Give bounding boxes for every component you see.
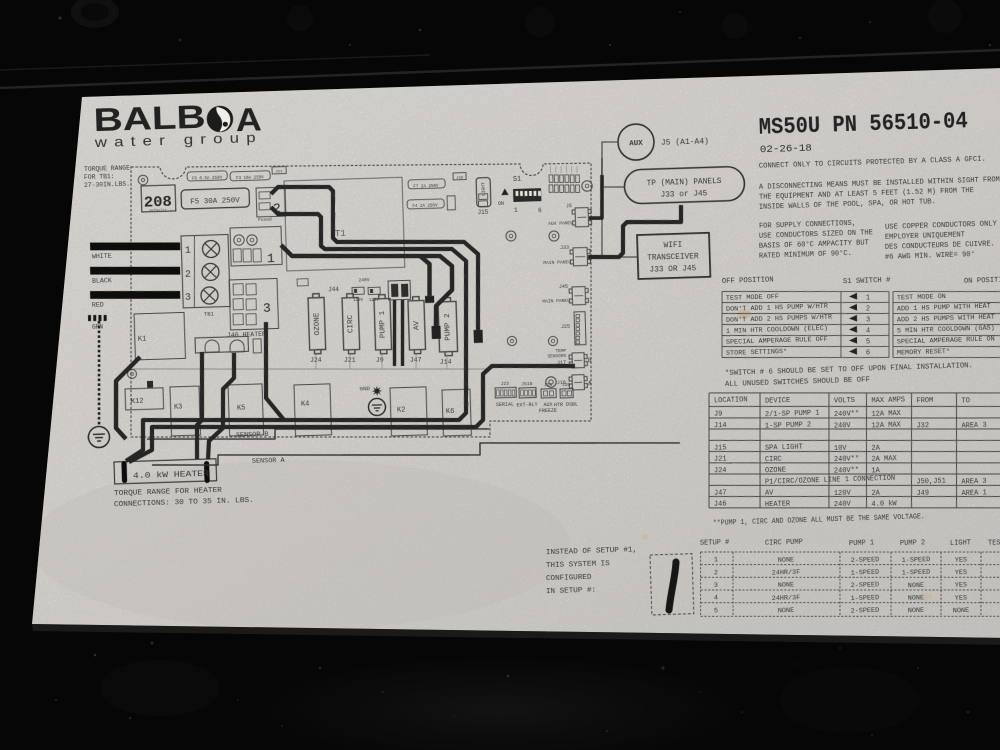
svg-text:EXT-RLY: EXT-RLY [516, 402, 537, 409]
svg-text:ON POSITION: ON POSITION [964, 277, 1000, 286]
svg-text:K12: K12 [131, 398, 144, 406]
svg-text:5: 5 [866, 339, 870, 347]
svg-text:FREEZE: FREEZE [539, 408, 557, 415]
svg-text:NONE: NONE [778, 556, 795, 565]
svg-text:J32: J32 [916, 422, 929, 430]
svg-text:LIGHT: LIGHT [950, 539, 971, 548]
svg-text:2: 2 [866, 306, 870, 314]
svg-text:12A MAX: 12A MAX [871, 410, 901, 419]
svg-text:J45: J45 [559, 284, 568, 290]
svg-text:J14: J14 [714, 422, 727, 430]
svg-text:CIRC: CIRC [765, 456, 782, 465]
svg-text:4: 4 [866, 328, 870, 336]
svg-text:defaults: defaults [149, 208, 166, 214]
svg-text:YES: YES [955, 582, 967, 590]
svg-text:MAX AMPS: MAX AMPS [871, 396, 905, 405]
svg-text:OZONE: OZONE [313, 312, 322, 335]
svg-text:J49: J49 [916, 489, 929, 497]
svg-text:TO: TO [961, 397, 970, 405]
svg-text:F4 2A 250V: F4 2A 250V [412, 205, 438, 210]
svg-text:AREA 3: AREA 3 [961, 478, 986, 487]
svg-text:AV: AV [765, 490, 774, 498]
svg-text:240V**: 240V** [834, 467, 859, 476]
svg-text:6: 6 [538, 207, 542, 214]
svg-text:DEVICE: DEVICE [765, 397, 790, 406]
svg-text:240V: 240V [358, 277, 369, 283]
svg-text:IN SETUP #:: IN SETUP #: [546, 586, 596, 596]
svg-text:5: 5 [714, 607, 718, 615]
svg-text:12A MAX: 12A MAX [871, 422, 901, 431]
svg-text:TES: TES [988, 540, 1000, 548]
svg-text:K1: K1 [138, 336, 147, 344]
svg-text:2A: 2A [871, 445, 880, 453]
svg-text:HTR DSBL: HTR DSBL [554, 402, 578, 409]
svg-text:PUMP 2: PUMP 2 [444, 313, 453, 341]
svg-text:GND: GND [359, 385, 370, 392]
svg-text:02-26-18: 02-26-18 [760, 142, 812, 156]
svg-text:27-30IN.LBS.: 27-30IN.LBS. [84, 181, 130, 189]
svg-text:J15: J15 [477, 209, 488, 216]
svg-text:MAIN PANEL: MAIN PANEL [543, 259, 571, 266]
svg-text:J20: J20 [562, 382, 571, 388]
svg-text:K2: K2 [397, 407, 406, 415]
svg-text:3: 3 [263, 301, 271, 316]
svg-text:TORQUE RANGE: TORQUE RANGE [84, 165, 130, 173]
svg-text:1: 1 [866, 295, 870, 303]
svg-text:240V**: 240V** [834, 455, 859, 464]
svg-text:NONE: NONE [778, 607, 795, 616]
svg-text:SENSOR A: SENSOR A [252, 457, 286, 466]
svg-text:J50,J51: J50,J51 [916, 478, 946, 487]
svg-text:TRANSCEIVER: TRANSCEIVER [647, 253, 699, 263]
svg-text:4.0 kW: 4.0 kW [871, 500, 897, 509]
svg-text:S1 SWITCH #: S1 SWITCH # [843, 276, 891, 286]
svg-text:YES: YES [955, 594, 967, 602]
svg-text:3: 3 [866, 317, 870, 325]
svg-text:J25: J25 [561, 324, 570, 330]
svg-text:S1: S1 [513, 176, 522, 184]
svg-text:J33 or J45: J33 or J45 [660, 190, 707, 199]
svg-text:K3: K3 [174, 404, 183, 412]
svg-text:J33 OR J45: J33 OR J45 [649, 265, 696, 274]
svg-text:SETUP #: SETUP # [700, 539, 730, 548]
svg-text:OFF POSITION: OFF POSITION [722, 276, 774, 286]
svg-text:J5 (A1-A4): J5 (A1-A4) [661, 138, 709, 149]
svg-text:J19: J19 [456, 176, 464, 180]
svg-text:10V: 10V [834, 444, 848, 452]
svg-text:CONFIGURED: CONFIGURED [546, 574, 592, 583]
svg-text:J46: J46 [714, 501, 727, 509]
svg-text:AUX PANEL: AUX PANEL [548, 220, 573, 227]
svg-text:RED: RED [92, 302, 104, 309]
svg-text:AREA 1: AREA 1 [961, 489, 986, 498]
svg-text:FOR TB1:: FOR TB1: [84, 173, 115, 181]
svg-text:J15: J15 [714, 445, 727, 453]
svg-text:J21: J21 [714, 456, 727, 464]
svg-text:2-SPEED: 2-SPEED [851, 556, 880, 565]
svg-text:PUMP 1: PUMP 1 [849, 539, 874, 548]
svg-text:NONE: NONE [908, 582, 925, 591]
svg-text:FROM: FROM [916, 397, 933, 406]
svg-text:J46 HEATER: J46 HEATER [227, 331, 266, 339]
svg-text:MEMORY RESET*: MEMORY RESET* [897, 348, 950, 358]
svg-text:240V**: 240V** [834, 410, 859, 419]
svg-text:YES: YES [955, 556, 967, 564]
svg-text:J24: J24 [714, 467, 727, 475]
svg-text:K4: K4 [301, 401, 310, 409]
svg-text:1-SPEED: 1-SPEED [851, 594, 880, 603]
svg-text:PUMP 1: PUMP 1 [379, 310, 388, 338]
svg-text:3: 3 [714, 582, 718, 590]
svg-text:SENSOR B: SENSOR B [236, 431, 269, 440]
svg-text:F5 30A 250V: F5 30A 250V [190, 197, 240, 207]
svg-text:2-SPEED: 2-SPEED [851, 607, 880, 616]
svg-text:Fused: Fused [258, 217, 272, 223]
svg-text:1: 1 [185, 246, 191, 257]
svg-text:MAIN PANEL: MAIN PANEL [542, 298, 570, 305]
svg-text:OZONE: OZONE [765, 467, 786, 476]
svg-text:CIRC: CIRC [347, 314, 356, 333]
svg-text:240V: 240V [834, 500, 852, 509]
svg-text:BLACK: BLACK [92, 277, 112, 285]
svg-text:J9: J9 [714, 411, 723, 419]
svg-text:NONE: NONE [953, 607, 970, 616]
svg-text:J23: J23 [501, 381, 510, 387]
svg-text:6: 6 [866, 350, 870, 358]
svg-text:WIFI: WIFI [663, 242, 682, 251]
svg-text:SENSORS: SENSORS [547, 354, 566, 360]
svg-text:J5: J5 [566, 203, 572, 209]
svg-text:1: 1 [514, 207, 518, 214]
svg-text:1-SP PUMP 2: 1-SP PUMP 2 [765, 421, 811, 430]
svg-text:NONE: NONE [908, 594, 925, 603]
svg-text:1-SPEED: 1-SPEED [902, 556, 931, 565]
svg-text:3: 3 [185, 293, 191, 304]
svg-text:VOLTS: VOLTS [834, 397, 855, 406]
svg-text:LOCATION: LOCATION [714, 396, 748, 405]
svg-text:AREA 3: AREA 3 [961, 422, 986, 431]
svg-text:J11: J11 [275, 170, 283, 174]
svg-text:AV: AV [413, 320, 421, 330]
svg-text:YES: YES [955, 569, 967, 577]
svg-text:HEATER: HEATER [765, 500, 791, 509]
svg-text:T1: T1 [335, 229, 346, 239]
svg-text:ON: ON [498, 201, 504, 207]
svg-text:WHITE: WHITE [92, 253, 112, 261]
svg-text:NONE: NONE [908, 607, 925, 616]
svg-text:K6: K6 [446, 408, 455, 416]
svg-text:4: 4 [714, 594, 718, 602]
svg-text:NONE: NONE [778, 582, 795, 591]
svg-text:1: 1 [714, 556, 718, 564]
svg-text:240V: 240V [834, 422, 852, 431]
svg-text:A: A [588, 380, 592, 387]
svg-text:120V: 120V [834, 489, 852, 498]
svg-text:J9: J9 [376, 357, 384, 364]
svg-text:B: B [588, 357, 592, 364]
svg-text:GRN: GRN [92, 324, 104, 331]
svg-text:CIRC PUMP: CIRC PUMP [765, 539, 803, 548]
svg-text:J14: J14 [440, 359, 452, 366]
svg-text:2A MAX: 2A MAX [871, 455, 897, 464]
svg-text:AUX: AUX [629, 140, 643, 148]
svg-text:K5: K5 [237, 405, 246, 413]
svg-text:J26: J26 [544, 382, 553, 388]
svg-text:2: 2 [714, 569, 718, 577]
svg-text:24HR/3F: 24HR/3F [772, 569, 801, 578]
svg-text:J51B: J51B [521, 381, 532, 387]
svg-text:J33: J33 [560, 245, 569, 251]
svg-text:2/1-SP PUMP 1: 2/1-SP PUMP 1 [765, 409, 820, 419]
svg-text:F7 2A 250V: F7 2A 250V [413, 185, 439, 190]
svg-text:PUMP 2: PUMP 2 [900, 539, 925, 548]
svg-text:SERIAL: SERIAL [496, 402, 514, 409]
svg-text:TEST MODE OFF: TEST MODE OFF [726, 293, 779, 303]
svg-text:2-SPEED: 2-SPEED [851, 581, 880, 590]
svg-text:2A: 2A [871, 490, 880, 498]
svg-text:1-SPEED: 1-SPEED [851, 569, 880, 578]
svg-text:SPA LIGHT: SPA LIGHT [765, 444, 803, 453]
svg-text:J47: J47 [714, 490, 727, 498]
svg-text:1-SPEED: 1-SPEED [902, 569, 931, 578]
svg-text:TB1: TB1 [204, 311, 215, 318]
svg-text:1: 1 [267, 251, 275, 266]
svg-text:24HR/3F: 24HR/3F [772, 594, 801, 603]
svg-text:2: 2 [185, 270, 191, 281]
svg-text:TEST MODE ON: TEST MODE ON [897, 293, 946, 303]
svg-text:J44: J44 [328, 286, 339, 293]
